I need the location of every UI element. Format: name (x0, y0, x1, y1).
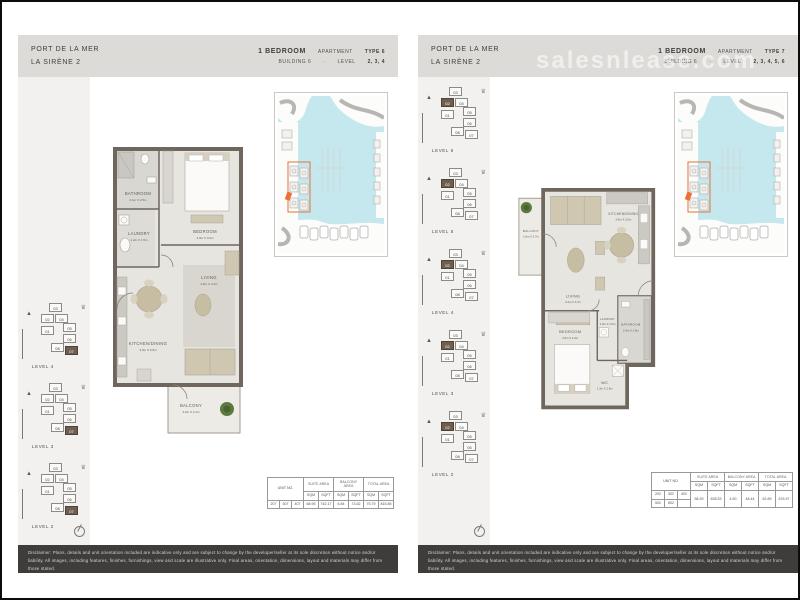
sqft-header: SQFT (379, 491, 394, 500)
unit-number: 602 (665, 499, 678, 508)
site-map-graphic (278, 96, 384, 253)
separator-dot: · (709, 58, 711, 68)
total-area-header: TOTAL AREA (364, 478, 394, 492)
svg-text:KITCHEN/DINING: KITCHEN/DINING (609, 212, 639, 216)
key-plan-unit: 03 (449, 168, 462, 177)
building-label: BUILDING 6 (279, 58, 312, 68)
project-name: PORT DE LA MER (431, 43, 499, 56)
key-plan-unit: 02 (41, 314, 54, 323)
key-plan-unit: 04 (55, 314, 68, 323)
key-plan-unit: 07 (465, 130, 478, 139)
scale-line-icon (422, 356, 423, 386)
sqft-header: SQFT (776, 481, 793, 490)
level-values: 2, 3, 4 (368, 58, 385, 68)
key-plan-unit: 07 (465, 211, 478, 220)
key-plan-unit: 08 (451, 208, 464, 217)
key-plan-unit: 03 (49, 303, 62, 312)
key-plan-unit: 06 (63, 334, 76, 343)
svg-text:2.4m X 1.9m: 2.4m X 1.9m (623, 328, 639, 332)
suite-area-header: SUITE AREA (304, 478, 334, 492)
key-plan-unit: 07 (65, 346, 78, 355)
key-plan-unit-cluster: 0302040105060807 (436, 411, 482, 465)
building-icon: ▲ (26, 471, 32, 477)
scale-line-icon (22, 489, 23, 519)
living-room: LIVING 3.6m X 4.4m (183, 251, 239, 375)
key-plan-level-label: LEVEL 2 (32, 524, 54, 529)
project-title: PORT DE LA MER LA SIRÈNE 2 (431, 43, 499, 70)
unit-number: 202 (652, 490, 665, 499)
svg-text:4.4m X 3.7m: 4.4m X 3.7m (565, 300, 581, 304)
suite-sqm: 58.39 (691, 490, 708, 508)
svg-text:BALCONY: BALCONY (523, 229, 539, 233)
key-plan-level-label: LEVEL 5 (432, 229, 454, 234)
key-plan-unit-cluster: 0302040105060807 (36, 303, 82, 357)
svg-text:1.8m X 2.7m: 1.8m X 2.7m (523, 235, 539, 239)
key-plan-sidebar: ▲ ♛ 0302040105060807 LEVEL 4 ▲ ♛ 0302040… (18, 77, 90, 545)
svg-text:LIVING: LIVING (566, 294, 580, 299)
key-plan-unit: 02 (441, 98, 454, 107)
key-plan-unit-cluster: 0302040105060807 (436, 249, 482, 303)
sqft-header: SQFT (742, 481, 759, 490)
floor-plan-graphic: BALCONY 1.8m X 2.7m LIVING 4.4m X 3.7m (517, 187, 657, 412)
community-name: LA SIRÈNE 2 (431, 56, 499, 69)
page-header: PORT DE LA MER LA SIRÈNE 2 1 BEDROOM APA… (418, 35, 798, 77)
key-plan-unit: 03 (449, 330, 462, 339)
svg-text:LAUNDRY: LAUNDRY (600, 317, 615, 321)
balcony-room: BALCONY 1.8m X 2.7m (519, 198, 543, 275)
floor-plan-type-7: BALCONY 1.8m X 2.7m LIVING 4.4m X 3.7m (517, 187, 657, 417)
key-plan-unit: 07 (465, 373, 478, 382)
unit-number: 302 (665, 490, 678, 499)
key-plan-unit: 01 (441, 191, 454, 200)
key-plan-unit: 02 (441, 422, 454, 431)
svg-text:BATHROOM: BATHROOM (621, 323, 640, 327)
key-plan: ▲ ♛ 0302040105060807 LEVEL 4 (32, 303, 82, 369)
svg-text:1.0m X 1.5m: 1.0m X 1.5m (600, 322, 616, 326)
unit-number: 307 (280, 500, 292, 509)
key-plan-unit: 04 (455, 341, 468, 350)
unit-number: 502 (652, 499, 665, 508)
key-plan-unit: 07 (465, 454, 478, 463)
site-map-graphic (678, 96, 784, 253)
key-plan-unit: 05 (463, 431, 476, 440)
key-plan: ▲ ♛ 0302040105060807 LEVEL 6 (432, 87, 482, 153)
key-plan-unit: 08 (51, 503, 64, 512)
key-plan-unit: 06 (63, 414, 76, 423)
key-plan-unit: 02 (441, 260, 454, 269)
building-icon: ▲ (426, 419, 432, 425)
key-plan-unit: 08 (451, 289, 464, 298)
key-plan-unit: 01 (441, 434, 454, 443)
svg-text:3.6m X 4.0m: 3.6m X 4.0m (562, 336, 578, 340)
svg-text:BEDROOM: BEDROOM (559, 329, 581, 334)
bedroom-count: 1 BEDROOM (258, 45, 306, 58)
balcony-sqm: 4.50 (725, 490, 742, 508)
suite-sqft: 742.17 (319, 500, 334, 509)
key-plan-unit: 03 (49, 463, 62, 472)
floor-plan-type-6: BALCONY 4.0m X 2.1m BATHROOM 2.1m X 2.5m (113, 147, 243, 442)
svg-text:KITCHEN/DINING: KITCHEN/DINING (129, 341, 167, 346)
community-name: LA SIRÈNE 2 (31, 56, 99, 69)
unit-number: 402 (678, 490, 691, 499)
building-icon: ▲ (426, 95, 432, 101)
svg-text:WC: WC (601, 380, 608, 385)
key-plan-unit: 01 (41, 486, 54, 495)
suite-sqft: 628.53 (708, 490, 725, 508)
svg-text:2.1m X 2.5m: 2.1m X 2.5m (129, 198, 147, 202)
total-sqft: 676.97 (776, 490, 793, 508)
level-values: 2, 3, 4, 5, 6 (753, 58, 785, 68)
sqm-header: SQM (304, 491, 319, 500)
balcony-area-header: BALCONY AREA (334, 478, 364, 492)
key-plan-unit: 03 (449, 249, 462, 258)
key-plan-unit-cluster: 0302040105060807 (436, 168, 482, 222)
sqm-header: SQM (691, 481, 708, 490)
suite-sqm: 68.95 (304, 500, 319, 509)
svg-text:BATHROOM: BATHROOM (125, 191, 151, 196)
key-plan-unit: 03 (449, 87, 462, 96)
laundry-room: LAUNDRY 1.2m X 1.5m (117, 209, 155, 267)
key-plan: ▲ ♛ 0302040105060807 LEVEL 3 (32, 383, 82, 449)
key-plan: ▲ ♛ 0302040105060807 LEVEL 4 (432, 249, 482, 315)
key-plan: ▲ ♛ 0302040105060807 LEVEL 5 (432, 168, 482, 234)
svg-text:4.0m X 2.1m: 4.0m X 2.1m (182, 410, 200, 414)
key-plan-unit: 01 (41, 326, 54, 335)
key-plan-unit: 02 (41, 474, 54, 483)
scale-line-icon (422, 437, 423, 467)
key-plan: ▲ ♛ 0302040105060807 LEVEL 3 (432, 330, 482, 396)
key-plan-unit: 02 (41, 394, 54, 403)
key-plan-unit: 08 (451, 370, 464, 379)
svg-text:3.9m X 3.0m: 3.9m X 3.0m (615, 218, 631, 222)
floor-plan-graphic: BALCONY 4.0m X 2.1m BATHROOM 2.1m X 2.5m (113, 147, 243, 437)
key-plan-unit: 08 (51, 343, 64, 352)
key-plan-unit: 06 (463, 280, 476, 289)
building-icon: ▲ (426, 338, 432, 344)
svg-text:LAUNDRY: LAUNDRY (128, 231, 150, 236)
key-plan-unit-cluster: 0302040105060807 (36, 463, 82, 517)
key-plan-unit: 08 (451, 451, 464, 460)
level-label: LEVEL (723, 58, 741, 68)
disclaimer: Disclaimer: Plans, details and unit orie… (18, 545, 398, 573)
balcony-area-header: BALCONY AREA (725, 473, 759, 482)
page-type-7: salesnlease.com PORT DE LA MER LA SIRÈNE… (418, 35, 798, 573)
unit-no-header: UNIT NO. (652, 473, 691, 491)
key-plan-unit: 06 (463, 442, 476, 451)
svg-text:4.0m X 3.6m: 4.0m X 3.6m (196, 236, 214, 240)
key-plan-unit: 01 (41, 406, 54, 415)
scale-line-icon (422, 113, 423, 143)
sqft-header: SQFT (349, 491, 364, 500)
building-icon: ▲ (26, 391, 32, 397)
key-plan-level-label: LEVEL 4 (432, 310, 454, 315)
key-plan-level-label: LEVEL 4 (32, 364, 54, 369)
key-plan: ▲ ♛ 0302040105060807 LEVEL 2 (32, 463, 82, 529)
total-sqft: 815.85 (379, 500, 394, 509)
unit-number: 407 (292, 500, 304, 509)
key-plan-unit: 01 (441, 353, 454, 362)
unit-number: 207 (268, 500, 280, 509)
building-icon: ▲ (426, 176, 432, 182)
compass-icon (474, 526, 485, 537)
key-plan-unit-cluster: 0302040105060807 (436, 87, 482, 141)
page-type-6: PORT DE LA MER LA SIRÈNE 2 1 BEDROOM APA… (18, 35, 398, 573)
unit-no-header: UNIT NO. (268, 478, 304, 501)
key-plan-unit: 01 (441, 110, 454, 119)
key-plan-unit: 05 (63, 483, 76, 492)
apartment-type: TYPE 7 (765, 48, 785, 58)
area-table: UNIT NO. SUITE AREA BALCONY AREA TOTAL A… (267, 477, 394, 509)
scale-line-icon (422, 194, 423, 224)
key-plan-unit: 04 (455, 422, 468, 431)
key-plan-unit: 05 (463, 269, 476, 278)
site-map (674, 92, 788, 257)
apartment-label: APARTMENT (318, 48, 353, 58)
key-plan-level-label: LEVEL 3 (432, 391, 454, 396)
key-plan-unit: 05 (63, 323, 76, 332)
key-plan-unit: 08 (51, 423, 64, 432)
key-plan-unit: 03 (49, 383, 62, 392)
key-plan-sidebar: ▲ ♛ 0302040105060807 LEVEL 6 ▲ ♛ 0302040… (418, 77, 490, 545)
svg-text:3.0m X 2.9m: 3.0m X 2.9m (139, 348, 157, 352)
total-sqm: 62.89 (759, 490, 776, 508)
scale-line-icon (22, 409, 23, 439)
total-sqm: 75.79 (364, 500, 379, 509)
key-plan-unit: 05 (463, 188, 476, 197)
page-header: PORT DE LA MER LA SIRÈNE 2 1 BEDROOM APA… (18, 35, 398, 77)
bathroom-room: BATHROOM 2.1m X 2.5m (117, 151, 159, 209)
balcony-sqm: 6.84 (334, 500, 349, 509)
svg-text:3.6m X 4.4m: 3.6m X 4.4m (200, 282, 218, 286)
key-plan-unit: 04 (55, 474, 68, 483)
key-plan-unit: 02 (441, 341, 454, 350)
total-area-header: TOTAL AREA (759, 473, 793, 482)
key-plan-unit: 04 (55, 394, 68, 403)
sqm-header: SQM (364, 491, 379, 500)
sqm-header: SQM (759, 481, 776, 490)
disclaimer: Disclaimer: Plans, details and unit orie… (418, 545, 798, 573)
scale-line-icon (22, 329, 23, 359)
sqm-header: SQM (334, 491, 349, 500)
project-title: PORT DE LA MER LA SIRÈNE 2 (31, 43, 99, 70)
key-plan-unit: 01 (441, 272, 454, 281)
key-plan-unit: 02 (441, 179, 454, 188)
key-plan-unit: 07 (65, 426, 78, 435)
balcony-room: BALCONY 4.0m X 2.1m (168, 385, 240, 433)
svg-text:BEDROOM: BEDROOM (193, 229, 217, 234)
key-plan-unit: 06 (463, 361, 476, 370)
key-plan-unit: 06 (463, 199, 476, 208)
suite-area-header: SUITE AREA (691, 473, 725, 482)
svg-text:1.2m X 1.5m: 1.2m X 1.5m (130, 238, 148, 242)
project-name: PORT DE LA MER (31, 43, 99, 56)
brochure-canvas: PORT DE LA MER LA SIRÈNE 2 1 BEDROOM APA… (0, 0, 800, 600)
key-plan-unit: 04 (455, 98, 468, 107)
key-plan-unit: 05 (463, 350, 476, 359)
building-icon: ▲ (26, 311, 32, 317)
svg-text:BALCONY: BALCONY (180, 403, 202, 408)
key-plan-level-label: LEVEL 3 (32, 444, 54, 449)
key-plan-unit-cluster: 0302040105060807 (436, 330, 482, 384)
bathroom-room: BATHROOM 2.4m X 1.9m (618, 296, 652, 364)
separator-dot: · (323, 58, 325, 68)
bedroom-count: 1 BEDROOM (658, 45, 706, 58)
key-plan: ▲ ♛ 0302040105060807 LEVEL 2 (432, 411, 482, 477)
area-table: UNIT NO. SUITE AREA BALCONY AREA TOTAL A… (651, 472, 793, 508)
building-icon: ▲ (426, 257, 432, 263)
key-plan-unit: 05 (63, 403, 76, 412)
sqm-header: SQM (725, 481, 742, 490)
key-plan-unit-cluster: 0302040105060807 (36, 383, 82, 437)
key-plan-unit: 07 (65, 506, 78, 515)
unit-info: 1 BEDROOM APARTMENT TYPE 7 BUILDING 6 · … (658, 45, 785, 68)
balcony-sqft: 73.62 (349, 500, 364, 509)
sqft-header: SQFT (319, 491, 334, 500)
scale-line-icon (422, 275, 423, 305)
key-plan-level-label: LEVEL 2 (432, 472, 454, 477)
key-plan-unit: 05 (463, 107, 476, 116)
key-plan-unit: 04 (455, 179, 468, 188)
site-map (274, 92, 388, 257)
apartment-label: APARTMENT (718, 48, 753, 58)
level-label: LEVEL (338, 58, 356, 68)
svg-text:1.3m X 1.9m: 1.3m X 1.9m (597, 386, 613, 390)
unit-number-empty (678, 499, 691, 508)
sqft-header: SQFT (708, 481, 725, 490)
key-plan-unit: 06 (63, 494, 76, 503)
key-plan-unit: 03 (449, 411, 462, 420)
key-plan-level-label: LEVEL 6 (432, 148, 454, 153)
balcony-sqft: 48.44 (742, 490, 759, 508)
key-plan-unit: 08 (451, 127, 464, 136)
apartment-type: TYPE 6 (365, 48, 385, 58)
svg-text:LIVING: LIVING (201, 275, 217, 280)
key-plan-unit: 07 (465, 292, 478, 301)
key-plan-unit: 04 (455, 260, 468, 269)
unit-info: 1 BEDROOM APARTMENT TYPE 6 BUILDING 6 · … (258, 45, 385, 68)
building-label: BUILDING 6 (664, 58, 697, 68)
key-plan-unit: 06 (463, 118, 476, 127)
